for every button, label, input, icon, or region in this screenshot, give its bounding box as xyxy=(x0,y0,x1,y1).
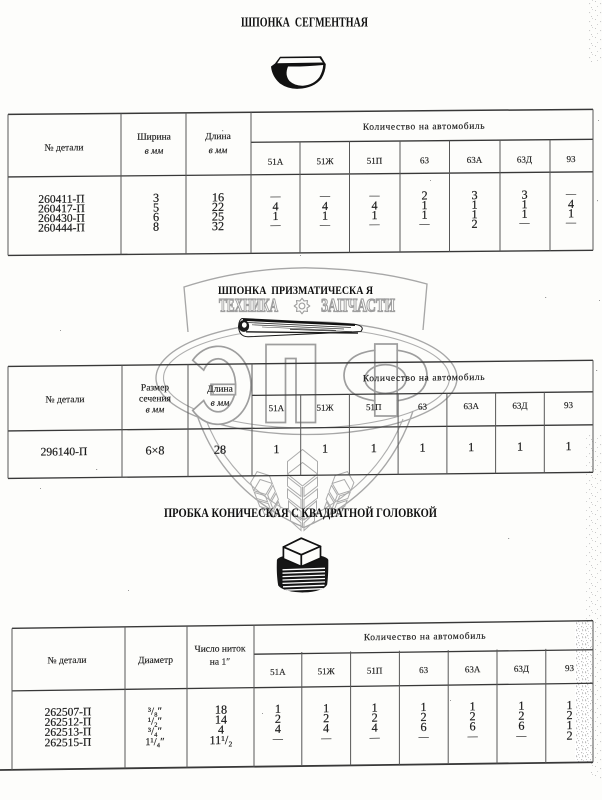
svg-text:—: — xyxy=(565,217,577,228)
svg-text:—: — xyxy=(369,733,381,744)
svg-text:Количество на автомобиль: Количество на автомобиль xyxy=(363,121,485,133)
svg-text:6×8: 6×8 xyxy=(145,443,164,457)
svg-text:Длина: Длина xyxy=(205,132,231,142)
svg-text:2: 2 xyxy=(471,217,477,231)
svg-text:Размер: Размер xyxy=(141,383,169,393)
svg-text:93: 93 xyxy=(564,400,573,410)
svg-text:63А: 63А xyxy=(467,155,483,165)
svg-text:в мм: в мм xyxy=(209,146,228,156)
svg-text:51А: 51А xyxy=(269,403,285,413)
svg-text:1: 1 xyxy=(517,440,523,454)
svg-text:1: 1 xyxy=(273,442,279,456)
svg-text:—: — xyxy=(272,734,284,745)
svg-text:³/₄″: ³/₄″ xyxy=(148,726,162,737)
svg-text:63: 63 xyxy=(418,402,427,412)
svg-text:в мм: в мм xyxy=(211,399,230,409)
svg-text:11¹/₂: 11¹/₂ xyxy=(209,733,232,747)
svg-text:ЗАПЧАСТИ: ЗАПЧАСТИ xyxy=(321,297,395,317)
svg-text:—: — xyxy=(467,731,479,742)
svg-text:сечения: сечения xyxy=(139,394,171,404)
svg-text:51П: 51П xyxy=(366,402,382,412)
svg-text:ТЕХНИКА: ТЕХНИКА xyxy=(219,297,278,317)
svg-text:—: — xyxy=(519,218,531,229)
svg-text:51Ж: 51Ж xyxy=(316,156,334,166)
svg-text:63Д: 63Д xyxy=(517,154,532,164)
svg-text:№ детали: № детали xyxy=(46,395,85,405)
svg-text:63Д: 63Д xyxy=(514,664,529,674)
svg-text:28: 28 xyxy=(214,443,226,457)
svg-text:Длина: Длина xyxy=(207,385,233,395)
svg-text:296140-П: 296140-П xyxy=(41,446,88,458)
svg-text:в мм: в мм xyxy=(146,405,165,415)
svg-text:63: 63 xyxy=(420,155,429,165)
svg-text:№ детали: № детали xyxy=(48,656,87,667)
svg-text:—: — xyxy=(320,733,332,744)
svg-text:51П: 51П xyxy=(367,665,383,675)
svg-text:на 1″: на 1″ xyxy=(210,657,230,667)
svg-text:51А: 51А xyxy=(268,157,284,167)
svg-text:—: — xyxy=(418,732,430,743)
svg-text:63Д: 63Д xyxy=(512,400,527,410)
svg-text:63: 63 xyxy=(419,665,428,675)
svg-text:51А: 51А xyxy=(270,667,286,677)
svg-text:93: 93 xyxy=(565,663,574,673)
svg-text:№ детали: № детали xyxy=(45,143,84,153)
svg-text:ПРОБКА КОНИЧЕСКАЯ С КВАДРАТНОЙ: ПРОБКА КОНИЧЕСКАЯ С КВАДРАТНОЙ ГОЛОВКОЙ xyxy=(164,505,437,520)
svg-text:ШПОНКА ПРИЗМАТИЧЕСКА Я: ШПОНКА ПРИЗМАТИЧЕСКА Я xyxy=(218,283,373,297)
svg-text:51Ж: 51Ж xyxy=(316,402,334,412)
svg-text:Число ниток: Число ниток xyxy=(195,644,246,655)
svg-text:1: 1 xyxy=(371,441,377,455)
svg-text:—: — xyxy=(419,219,431,230)
svg-text:51Ж: 51Ж xyxy=(318,666,336,676)
svg-text:Количество на автомобиль: Количество на автомобиль xyxy=(364,631,486,644)
svg-text:2: 2 xyxy=(566,729,572,743)
svg-text:Количество на автомобиль: Количество на автомобиль xyxy=(363,372,485,384)
svg-text:1¹/₄″: 1¹/₄″ xyxy=(145,737,164,748)
svg-text:ШПОНКА СЕГМЕНТНАЯ: ШПОНКА СЕГМЕНТНАЯ xyxy=(241,16,368,31)
svg-text:93: 93 xyxy=(567,154,576,164)
svg-text:260444-П: 260444-П xyxy=(38,222,85,234)
svg-text:—: — xyxy=(515,731,527,742)
svg-text:1: 1 xyxy=(565,439,571,453)
svg-text:Диаметр: Диаметр xyxy=(138,656,173,666)
svg-text:63А: 63А xyxy=(463,401,479,411)
svg-text:1: 1 xyxy=(468,440,474,454)
svg-text:—: — xyxy=(369,219,381,230)
svg-text:32: 32 xyxy=(212,219,224,233)
svg-text:262515-П: 262515-П xyxy=(45,737,92,750)
svg-text:1: 1 xyxy=(419,441,425,455)
svg-text:—: — xyxy=(270,220,282,231)
svg-text:—: — xyxy=(319,220,331,231)
svg-text:63А: 63А xyxy=(465,664,481,674)
svg-text:в мм: в мм xyxy=(145,147,164,157)
svg-text:8: 8 xyxy=(153,220,159,234)
svg-text:Ширина: Ширина xyxy=(137,133,172,143)
svg-text:1: 1 xyxy=(322,442,328,456)
svg-text:51П: 51П xyxy=(367,156,383,166)
